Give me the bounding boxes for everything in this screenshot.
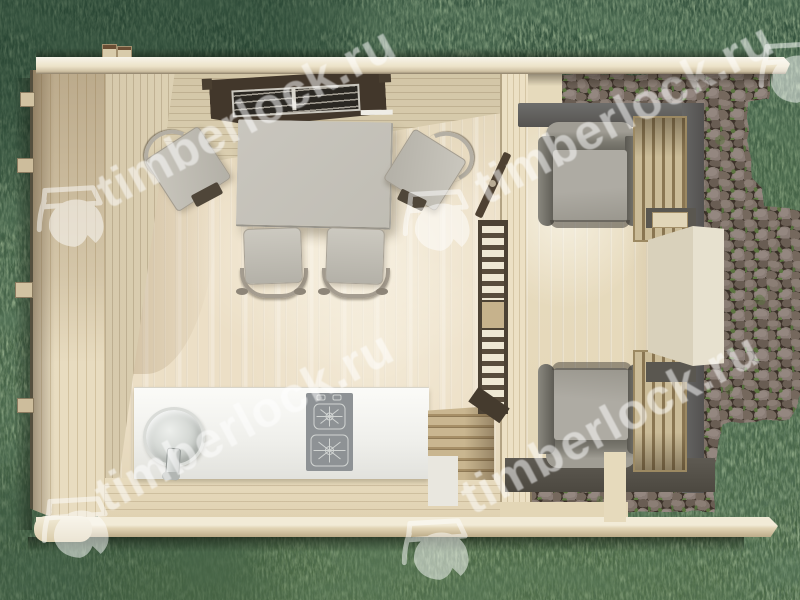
svg-text:timberlock.ru: timberlock.ru [465, 11, 782, 215]
svg-text:timberlock.ru: timberlock.ru [85, 319, 402, 523]
svg-text:timberlock.ru: timberlock.ru [87, 15, 404, 219]
svg-text:timberlock.ru: timberlock.ru [451, 321, 768, 525]
